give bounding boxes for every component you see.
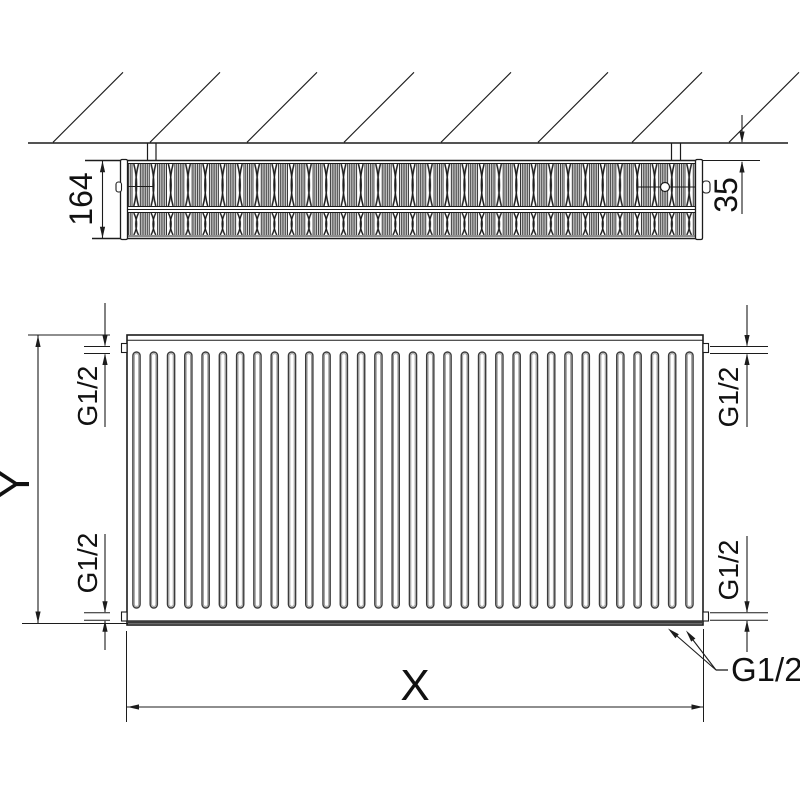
connection-tab-top-left — [122, 344, 128, 353]
slot — [167, 352, 174, 608]
dimension-depth-164: 164 — [63, 161, 105, 238]
slot — [548, 352, 555, 608]
slot — [254, 352, 261, 608]
slot — [323, 352, 330, 608]
top-view: 164 35 — [28, 72, 799, 239]
dimension-wall-distance-35: 35 — [703, 115, 760, 214]
radiator-front-body — [122, 335, 709, 625]
convector-fins-row1 — [128, 164, 696, 206]
slot — [444, 352, 451, 608]
wall-bracket-right — [672, 144, 681, 161]
front-view: Y X G1/2 G1/2 — [0, 303, 800, 722]
slot — [651, 352, 658, 608]
slot — [185, 352, 192, 608]
wall-distance-dimension-label: 35 — [708, 177, 744, 213]
plug-left — [116, 182, 122, 192]
callout-bottom-connections: G1/2 — [668, 629, 800, 689]
technical-drawing-page: 164 35 — [0, 0, 800, 800]
arrow-down-icon — [744, 335, 749, 347]
dimension-length-X: X — [127, 629, 704, 722]
valve-insert-icon — [661, 183, 670, 192]
slot — [409, 352, 416, 608]
connection-bottom-left-label: G1/2 — [72, 533, 103, 594]
slot — [375, 352, 382, 608]
slot — [617, 352, 624, 608]
slot — [582, 352, 589, 608]
slot — [530, 352, 537, 608]
height-dimension-label: Y — [0, 469, 39, 498]
dimension-connection-bottom-right: G1/2 — [710, 536, 768, 652]
arrow-up-icon — [744, 620, 749, 632]
convector-fins-row2 — [128, 213, 696, 235]
slot — [599, 352, 606, 608]
connection-top-left-label: G1/2 — [72, 366, 103, 427]
slot — [150, 352, 157, 608]
arrow-right-icon — [692, 704, 704, 709]
slot — [202, 352, 209, 608]
arrow-down-icon — [102, 601, 107, 613]
dimension-height-Y: Y — [0, 335, 128, 624]
connection-tab-bottom-left — [122, 612, 128, 621]
slot — [634, 352, 641, 608]
dimension-connection-top-left: G1/2 — [72, 303, 110, 427]
arrow-down-icon — [739, 132, 744, 144]
end-plate-left — [121, 160, 128, 240]
arrow-up-icon — [739, 161, 744, 173]
slot — [565, 352, 572, 608]
slot — [513, 352, 520, 608]
radiator-drawing: 164 35 — [0, 0, 800, 800]
wall-section — [28, 72, 799, 143]
slot — [306, 352, 313, 608]
connection-bottom-right-label: G1/2 — [713, 540, 744, 601]
slot — [427, 352, 434, 608]
slot — [669, 352, 676, 608]
connection-tab-top-right — [703, 344, 709, 353]
arrow-down-icon — [102, 335, 107, 347]
wall-bracket-left — [148, 144, 157, 161]
arrow-down-icon — [35, 612, 40, 624]
slot — [340, 352, 347, 608]
arrow-up-icon — [744, 354, 749, 366]
arrow-left-icon — [128, 704, 140, 709]
slot — [496, 352, 503, 608]
arrow-up-icon — [100, 161, 105, 173]
slot — [358, 352, 365, 608]
arrow-up-icon — [35, 336, 40, 348]
slot — [479, 352, 486, 608]
radiator-top-view-body — [85, 160, 710, 240]
slot — [288, 352, 295, 608]
connection-tab-bottom-right — [703, 612, 709, 621]
dimension-connection-bottom-left: G1/2 — [72, 533, 110, 650]
leader-arrow-icon — [686, 631, 695, 642]
slot — [219, 352, 226, 608]
arrow-down-icon — [744, 601, 749, 613]
length-dimension-label: X — [400, 661, 429, 710]
wall-hatching — [53, 72, 799, 142]
depth-dimension-label: 164 — [63, 172, 99, 225]
dimension-connection-top-right: G1/2 — [710, 305, 768, 427]
slot — [237, 352, 244, 608]
slot — [133, 352, 140, 608]
arrow-down-icon — [100, 227, 105, 239]
slot — [461, 352, 468, 608]
slot — [392, 352, 399, 608]
arrow-up-icon — [102, 354, 107, 366]
connection-bottom-callout-label: G1/2 — [731, 651, 800, 688]
arrow-up-icon — [102, 620, 107, 632]
end-plate-right — [696, 160, 703, 240]
connection-top-right-label: G1/2 — [713, 367, 744, 428]
slot — [271, 352, 278, 608]
slot — [686, 352, 693, 608]
